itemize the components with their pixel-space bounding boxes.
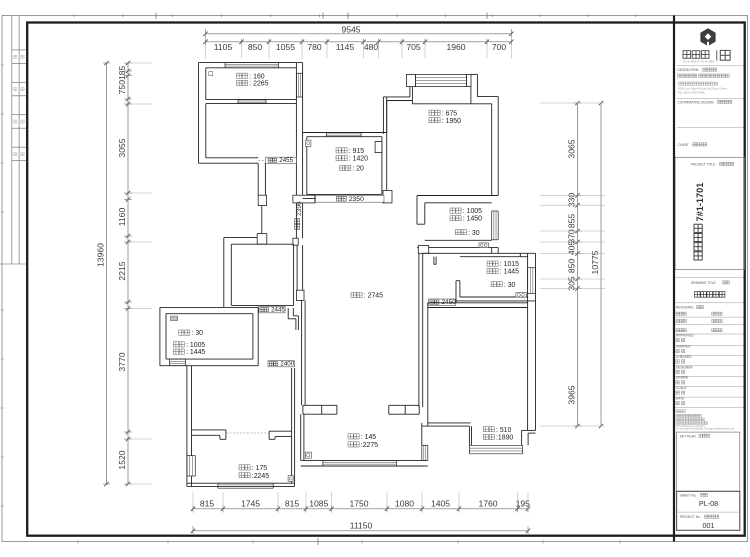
- svg-text:: 145: : 145: [361, 434, 376, 441]
- svg-text:: 675: : 675: [442, 110, 457, 117]
- svg-text:1145: 1145: [336, 42, 355, 52]
- svg-text:CLIENT: CLIENT: [678, 143, 689, 147]
- svg-text::2245: :2245: [252, 473, 269, 480]
- svg-text:Do not scale off drawings. Use: Do not scale off drawings. Use figured d…: [676, 427, 735, 430]
- svg-text:DRAWING TITLE: DRAWING TITLE: [691, 281, 716, 285]
- svg-text:2215: 2215: [117, 261, 127, 280]
- svg-text:3065: 3065: [566, 139, 576, 158]
- svg-text:1750: 1750: [349, 498, 368, 508]
- svg-text:: 1420: : 1420: [349, 156, 368, 163]
- svg-text:: 1950: : 1950: [442, 118, 461, 125]
- svg-text:APPROVED: APPROVED: [676, 334, 694, 338]
- svg-text:1405: 1405: [431, 498, 450, 508]
- svg-text:2400: 2400: [280, 361, 294, 368]
- svg-text:1085: 1085: [309, 498, 328, 508]
- svg-text:CHECKED: CHECKED: [676, 355, 692, 359]
- svg-text:: 2265: : 2265: [249, 81, 268, 88]
- svg-text:1055: 1055: [276, 42, 295, 52]
- svg-text:SCALE: SCALE: [676, 386, 686, 390]
- svg-text:001: 001: [703, 521, 715, 530]
- svg-text:: 30: : 30: [504, 282, 516, 289]
- svg-text:DESIGNER: DESIGNER: [676, 365, 693, 369]
- svg-text:815: 815: [285, 498, 300, 508]
- svg-text:VERIFIED: VERIFIED: [676, 345, 691, 349]
- svg-text:405: 405: [566, 241, 576, 256]
- svg-text:DRAWN: DRAWN: [676, 376, 689, 380]
- svg-text:850: 850: [248, 42, 263, 52]
- svg-text:1745: 1745: [241, 498, 260, 508]
- svg-text:3965: 3965: [566, 385, 576, 404]
- svg-text:: 2745: : 2745: [364, 293, 383, 300]
- svg-text:850: 850: [566, 259, 576, 274]
- svg-text:: 1015: : 1015: [500, 261, 519, 268]
- svg-text:GOLDMANTIS HOME: GOLDMANTIS HOME: [683, 59, 715, 63]
- svg-text:: 1445: : 1445: [186, 349, 205, 356]
- svg-text:: 1005: : 1005: [463, 208, 482, 215]
- svg-text:1160: 1160: [117, 208, 127, 227]
- svg-text:1960: 1960: [446, 42, 465, 52]
- svg-text:: 1450: : 1450: [463, 216, 482, 223]
- svg-text:1080: 1080: [395, 498, 414, 508]
- svg-text:PROJECT No.: PROJECT No.: [680, 515, 701, 519]
- svg-text:10775: 10775: [590, 250, 600, 274]
- svg-text:2455: 2455: [279, 157, 293, 164]
- svg-text:REVISIONS: REVISIONS: [676, 306, 693, 310]
- svg-text:9545: 9545: [341, 25, 360, 35]
- svg-text:COOPERATIVE DESIGN: COOPERATIVE DESIGN: [678, 100, 715, 104]
- svg-text:: 1445: : 1445: [500, 269, 519, 276]
- svg-text:: 1005: : 1005: [186, 342, 205, 349]
- svg-text:13960: 13960: [95, 243, 105, 267]
- svg-text::2275: :2275: [361, 442, 378, 449]
- svg-text:705: 705: [406, 42, 421, 52]
- svg-text:11150: 11150: [350, 521, 373, 531]
- svg-text:855: 855: [566, 214, 576, 229]
- svg-text:480: 480: [364, 42, 379, 52]
- svg-text::1890: :1890: [496, 435, 513, 442]
- svg-text:DESIGN FIRM: DESIGN FIRM: [678, 68, 699, 72]
- svg-text:780: 780: [307, 42, 322, 52]
- svg-text:3055: 3055: [117, 138, 127, 157]
- svg-text:PL-08: PL-08: [699, 499, 718, 508]
- svg-text:PROJECT TITLE: PROJECT TITLE: [691, 163, 715, 167]
- svg-text:KEY PLAN: KEY PLAN: [680, 434, 696, 438]
- svg-text:: 30: : 30: [192, 330, 204, 337]
- svg-text:700: 700: [492, 42, 507, 52]
- svg-text:750185: 750185: [117, 65, 127, 94]
- svg-text:SHEET No.: SHEET No.: [680, 493, 697, 497]
- svg-text:: 160: : 160: [249, 73, 264, 80]
- svg-text:: 30: : 30: [468, 230, 480, 237]
- svg-text:2396: 2396: [296, 201, 303, 216]
- svg-text:: 915: : 915: [349, 148, 364, 155]
- svg-text:: 175: : 175: [252, 465, 267, 472]
- svg-text:7#1-1701: 7#1-1701: [695, 183, 705, 222]
- svg-text:1760: 1760: [478, 498, 497, 508]
- svg-text:DATE: DATE: [676, 397, 684, 401]
- svg-text:815: 815: [200, 498, 215, 508]
- svg-text:1105: 1105: [214, 42, 233, 52]
- svg-text:TEL:0512-65673446: TEL:0512-65673446: [678, 90, 706, 94]
- svg-text:2445: 2445: [271, 307, 285, 314]
- svg-text:: 510: : 510: [496, 427, 511, 434]
- svg-text:3770: 3770: [117, 352, 127, 371]
- svg-text:2350: 2350: [349, 196, 364, 203]
- svg-text:1520: 1520: [117, 450, 127, 469]
- svg-text:: 20: : 20: [352, 166, 364, 173]
